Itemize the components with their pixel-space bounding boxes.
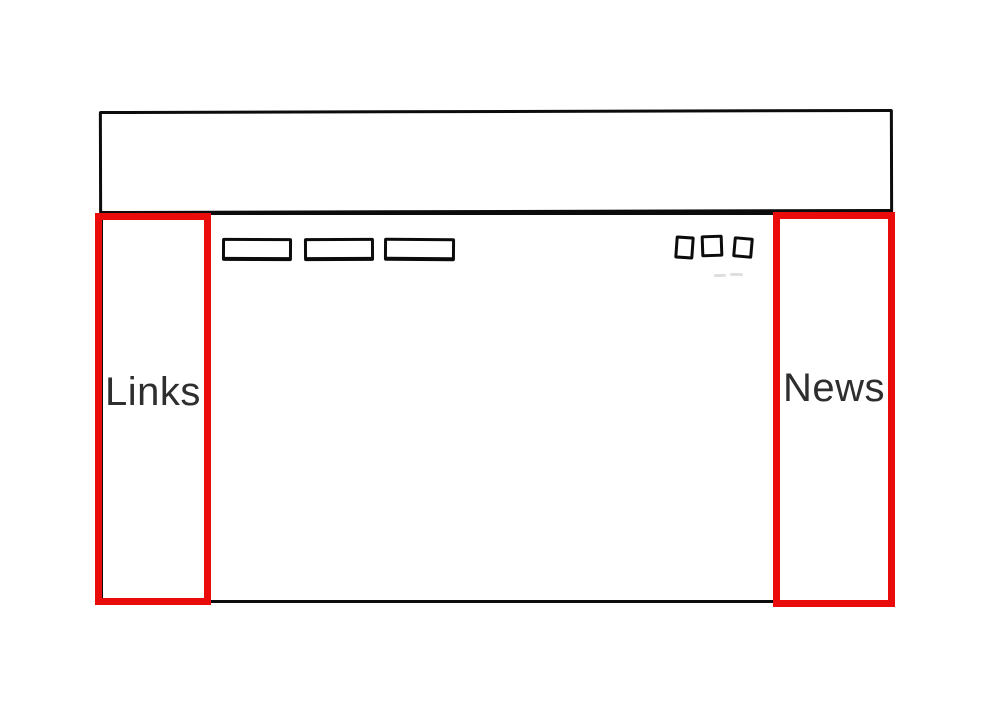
sketch-nav-button-2 xyxy=(304,238,374,261)
sketch-toolbar-square-1 xyxy=(674,235,695,259)
news-sidebar-label: News xyxy=(773,368,895,408)
sketch-header-box xyxy=(99,109,893,215)
sketch-nav-button-3 xyxy=(384,238,455,261)
sketch-toolbar-square-3 xyxy=(732,236,754,259)
sketch-nav-button-1 xyxy=(222,238,292,261)
links-sidebar-label: Links xyxy=(95,372,211,412)
pencil-smudge xyxy=(730,273,743,276)
sketch-toolbar-square-2 xyxy=(701,235,724,258)
wireframe-sketch-canvas: Links News xyxy=(0,0,1000,713)
pencil-smudge xyxy=(714,274,726,277)
